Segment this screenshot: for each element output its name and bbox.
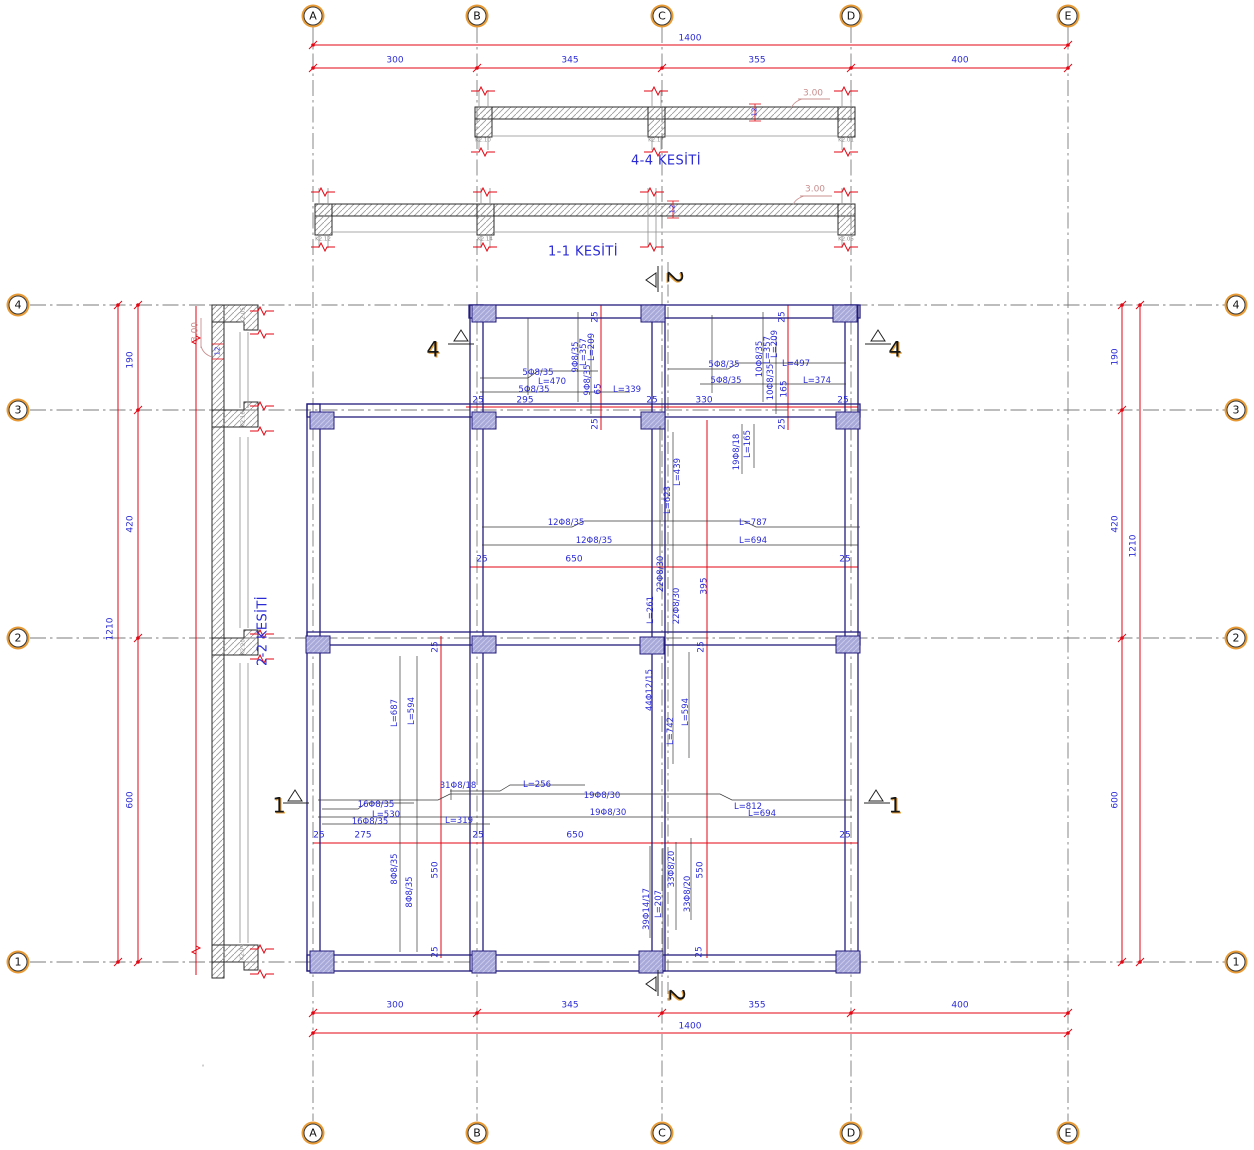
dimension-label: 295: [516, 397, 533, 406]
dimension-label: 25: [432, 641, 441, 652]
grid-bubble-1: 1: [1227, 953, 1246, 972]
dimension-label: 25: [779, 311, 788, 322]
rebar-callout: 19Φ8/18: [733, 434, 742, 471]
section-marker-digit: 1: [888, 796, 901, 817]
dimension-label: 25: [839, 556, 850, 565]
rebar-callout: L=339: [613, 386, 641, 395]
dimension-label: 420: [1112, 515, 1121, 532]
section-title: 2-2 KESİTİ: [257, 596, 270, 666]
grid-bubble-A: A: [304, 7, 323, 26]
rebar-callout: 5Φ8/35: [518, 386, 549, 395]
grid-bubble-E: E: [1059, 7, 1078, 26]
grid-bubble-E: E: [1059, 1124, 1078, 1143]
rebar-callout: L=374: [803, 377, 831, 386]
dimension-label: 650: [565, 556, 582, 565]
beam-label: K2.14: [477, 237, 493, 243]
rebar-callout: 5Φ8/35: [710, 377, 741, 386]
grid-bubble-1: 1: [9, 953, 28, 972]
dimension-ticks: [114, 41, 1144, 1037]
rebar-callout: L=694: [739, 537, 767, 546]
rebar-callout: L=497: [782, 360, 810, 369]
dimension-label: 25: [592, 311, 601, 322]
rebar-callout: 5Φ8/35: [708, 361, 739, 370]
dimension-label: 25: [472, 397, 483, 406]
rebar-callout: 39Φ14/17: [643, 888, 652, 930]
dimension-label: 300: [386, 57, 403, 66]
dimension-label: 65: [595, 383, 604, 394]
grid-axes: [30, 27, 1226, 1121]
dimension-lines: [118, 45, 1140, 1033]
beam-label: K2.10: [475, 138, 491, 144]
break-marks: [192, 87, 858, 978]
plan-red-lines: [196, 305, 858, 975]
grid-bubble-B: B: [468, 7, 487, 26]
dimension-label: 25: [472, 832, 483, 841]
rebar-callout: L=207: [655, 890, 664, 918]
dimension-label: 25: [839, 832, 850, 841]
dimension-label: 600: [127, 791, 136, 808]
dimension-label: 400: [951, 57, 968, 66]
rebar-callout: L=319: [445, 817, 473, 826]
rebar-callout: 19Φ8/30: [584, 792, 621, 801]
grid-bubble-3: 3: [1227, 401, 1246, 420]
grid-bubble-D: D: [842, 1124, 861, 1143]
rebar-callout: L=594: [682, 698, 691, 726]
dimension-label: 1400: [679, 1023, 702, 1032]
rebar-callout: L=742: [667, 717, 676, 745]
section-marker-digit: 4: [426, 340, 439, 361]
dimension-label: 345: [561, 1002, 578, 1011]
elevation-label: 3.00: [805, 186, 825, 195]
thickness-label: 12: [215, 347, 222, 356]
dimension-label: 25: [696, 946, 705, 957]
rebar-callout: L=209: [771, 330, 780, 358]
rebar-callout: 22Φ8/30: [673, 588, 682, 625]
beam-label: K2.05: [241, 307, 247, 323]
section-title: 1-1 KESİTİ: [548, 246, 618, 259]
rebar-callout: L=623: [664, 486, 673, 514]
thickness-label: 12: [752, 108, 759, 117]
rebar-callout: 12Φ8/35: [576, 537, 613, 546]
dimension-label: 25: [313, 832, 324, 841]
rebar-callout: 8Φ8/35: [406, 876, 415, 907]
beam-label: °: [202, 1065, 205, 1071]
rebar-callout: 10Φ8/35: [767, 364, 776, 401]
dimension-label: 420: [127, 515, 136, 532]
grid-bubble-4: 4: [9, 296, 28, 315]
dimension-label: 1400: [679, 35, 702, 44]
grid-bubble-C: C: [653, 1124, 672, 1143]
dimension-label: 165: [781, 380, 790, 397]
dimension-label: 300: [386, 1002, 403, 1011]
dimension-label: 330: [695, 397, 712, 406]
beam-label: K2.16: [241, 411, 247, 427]
dimension-label: 400: [951, 1002, 968, 1011]
section-4-4-geometry: [475, 107, 855, 137]
dimension-label: 25: [646, 397, 657, 406]
rebar-callout: L=209: [588, 333, 597, 361]
rebar-callout: L=256: [523, 781, 551, 790]
rebar-callout: L=787: [739, 519, 767, 528]
section-title: 4-4 KESİTİ: [631, 155, 701, 168]
dimension-label: 600: [1112, 791, 1121, 808]
section-1-1-geometry: [315, 204, 855, 235]
dimension-label: 190: [127, 351, 136, 368]
dimension-label: 25: [592, 418, 601, 429]
beam-label: K2.04: [240, 944, 246, 960]
rebar-callout: L=687: [391, 699, 400, 727]
grid-bubble-D: D: [842, 7, 861, 26]
section-marker-digit: 2: [664, 270, 685, 283]
dimension-label: 355: [748, 57, 765, 66]
grid-bubble-C: C: [653, 7, 672, 26]
rebar-callout: 9Φ8/35: [584, 364, 593, 395]
dimension-label: 355: [748, 1002, 765, 1011]
beam-label: K2.05: [838, 237, 854, 243]
rebar-callout: L=261: [647, 596, 656, 624]
beam-label: K2.20: [241, 639, 247, 655]
grid-bubble-2: 2: [9, 629, 28, 648]
rebar-callout: 16Φ8/35: [358, 801, 395, 810]
dimension-label: 550: [697, 861, 706, 878]
grid-bubble-A: A: [304, 1124, 323, 1143]
dimension-label: 25: [432, 946, 441, 957]
rebar-callout: 12Φ8/35: [548, 519, 585, 528]
beam-label: K2.12: [315, 237, 331, 243]
rebar-callout: L=439: [674, 458, 683, 486]
rebar-callout: 33Φ8/20: [684, 876, 693, 913]
dimension-label: 190: [1112, 348, 1121, 365]
section-marker-digit: 4: [888, 340, 901, 361]
grid-bubble-4: 4: [1227, 296, 1246, 315]
dimension-label: 395: [701, 577, 710, 594]
rebar-callout: 22Φ8/30: [657, 556, 666, 593]
drawing-geometry: [0, 0, 1254, 1150]
dimension-label: 25: [779, 418, 788, 429]
rebar-callout: L=594: [408, 697, 417, 725]
section-marker-digit: 1: [272, 796, 285, 817]
rebar-callout: L=165: [744, 430, 753, 458]
grid-bubble-B: B: [468, 1124, 487, 1143]
rebar-callout: 33Φ8/20: [668, 851, 677, 888]
rebar-callout: 19Φ8/30: [590, 809, 627, 818]
grid-bubble-2: 2: [1227, 629, 1246, 648]
rebar-callout: 16Φ8/35: [352, 818, 389, 827]
beam-label: K2.01: [838, 138, 854, 144]
elevation-label: 3.00: [803, 90, 823, 99]
rebar-callout: 44Φ12/15: [646, 669, 655, 711]
dimension-label: 275: [354, 832, 371, 841]
dimension-label: 550: [432, 861, 441, 878]
dimension-label: 25: [837, 397, 848, 406]
dimension-label: 345: [561, 57, 578, 66]
rebar-callout: 31Φ8/18: [440, 782, 477, 791]
dimension-label: 25: [476, 556, 487, 565]
structural-drawing: 1400300345355400300345355400140019042060…: [0, 0, 1254, 1150]
dimension-label: 1210: [107, 618, 116, 641]
section-marker-digit: 2: [666, 988, 687, 1001]
thickness-label: 12: [670, 205, 677, 214]
dimension-label: 650: [566, 832, 583, 841]
grid-bubble-3: 3: [9, 401, 28, 420]
rebar-callout: L=694: [748, 810, 776, 819]
dimension-label: 25: [698, 641, 707, 652]
elevation-label: 3.00: [192, 322, 201, 342]
dimension-label: 1210: [1130, 535, 1139, 558]
beam-label: K2.17: [648, 138, 664, 144]
rebar-callout: 8Φ8/35: [391, 853, 400, 884]
